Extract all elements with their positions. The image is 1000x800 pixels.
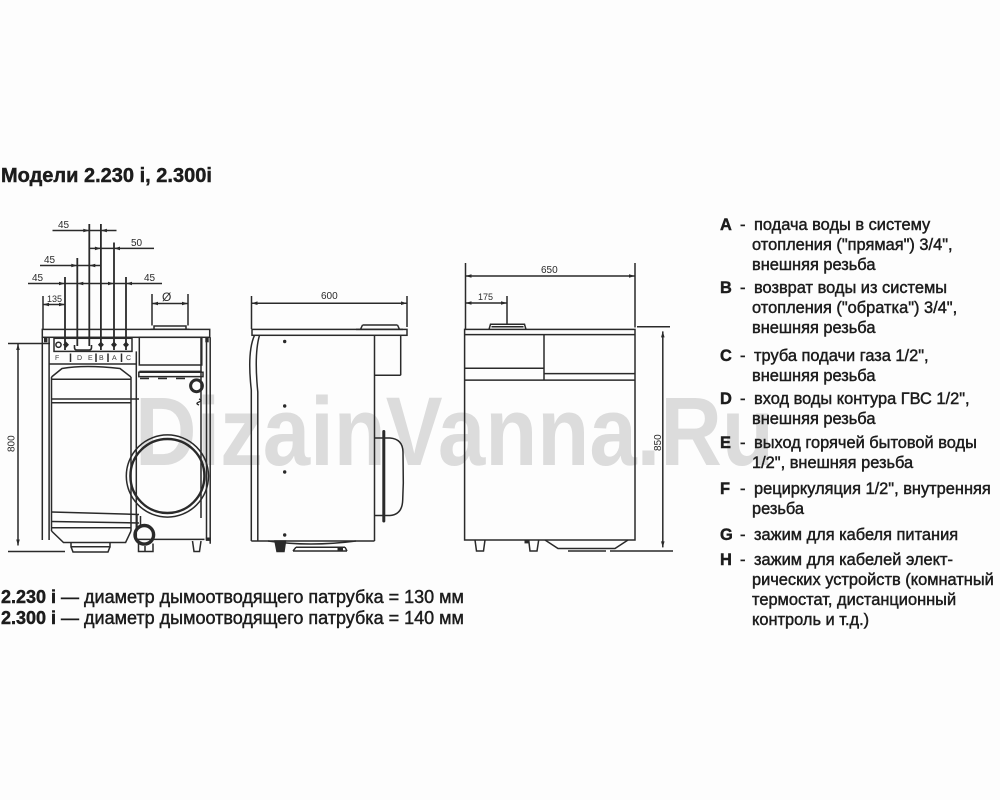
- svg-text:50: 50: [131, 238, 143, 249]
- svg-text:45: 45: [44, 255, 56, 266]
- svg-text:Ø: Ø: [162, 290, 171, 304]
- svg-text:45: 45: [32, 273, 44, 284]
- svg-text:45: 45: [144, 273, 156, 284]
- svg-text:135: 135: [47, 294, 62, 304]
- svg-text:45: 45: [58, 220, 70, 231]
- svg-text:850: 850: [653, 434, 664, 451]
- svg-text:600: 600: [321, 291, 338, 302]
- svg-text:800: 800: [7, 435, 18, 452]
- svg-text:175: 175: [478, 292, 493, 302]
- svg-text:650: 650: [541, 265, 558, 276]
